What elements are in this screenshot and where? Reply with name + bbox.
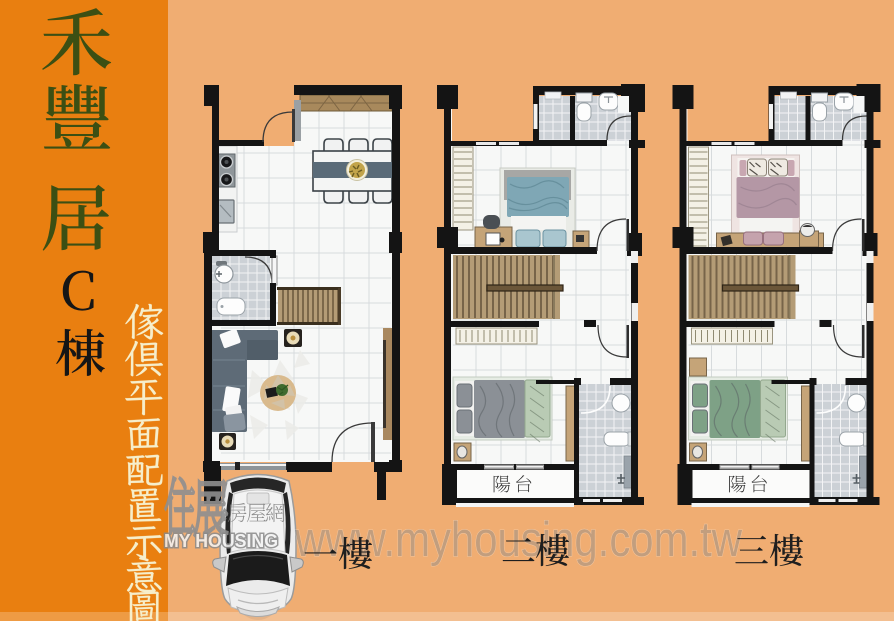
svg-text:MY HOUSING: MY HOUSING (164, 531, 278, 551)
